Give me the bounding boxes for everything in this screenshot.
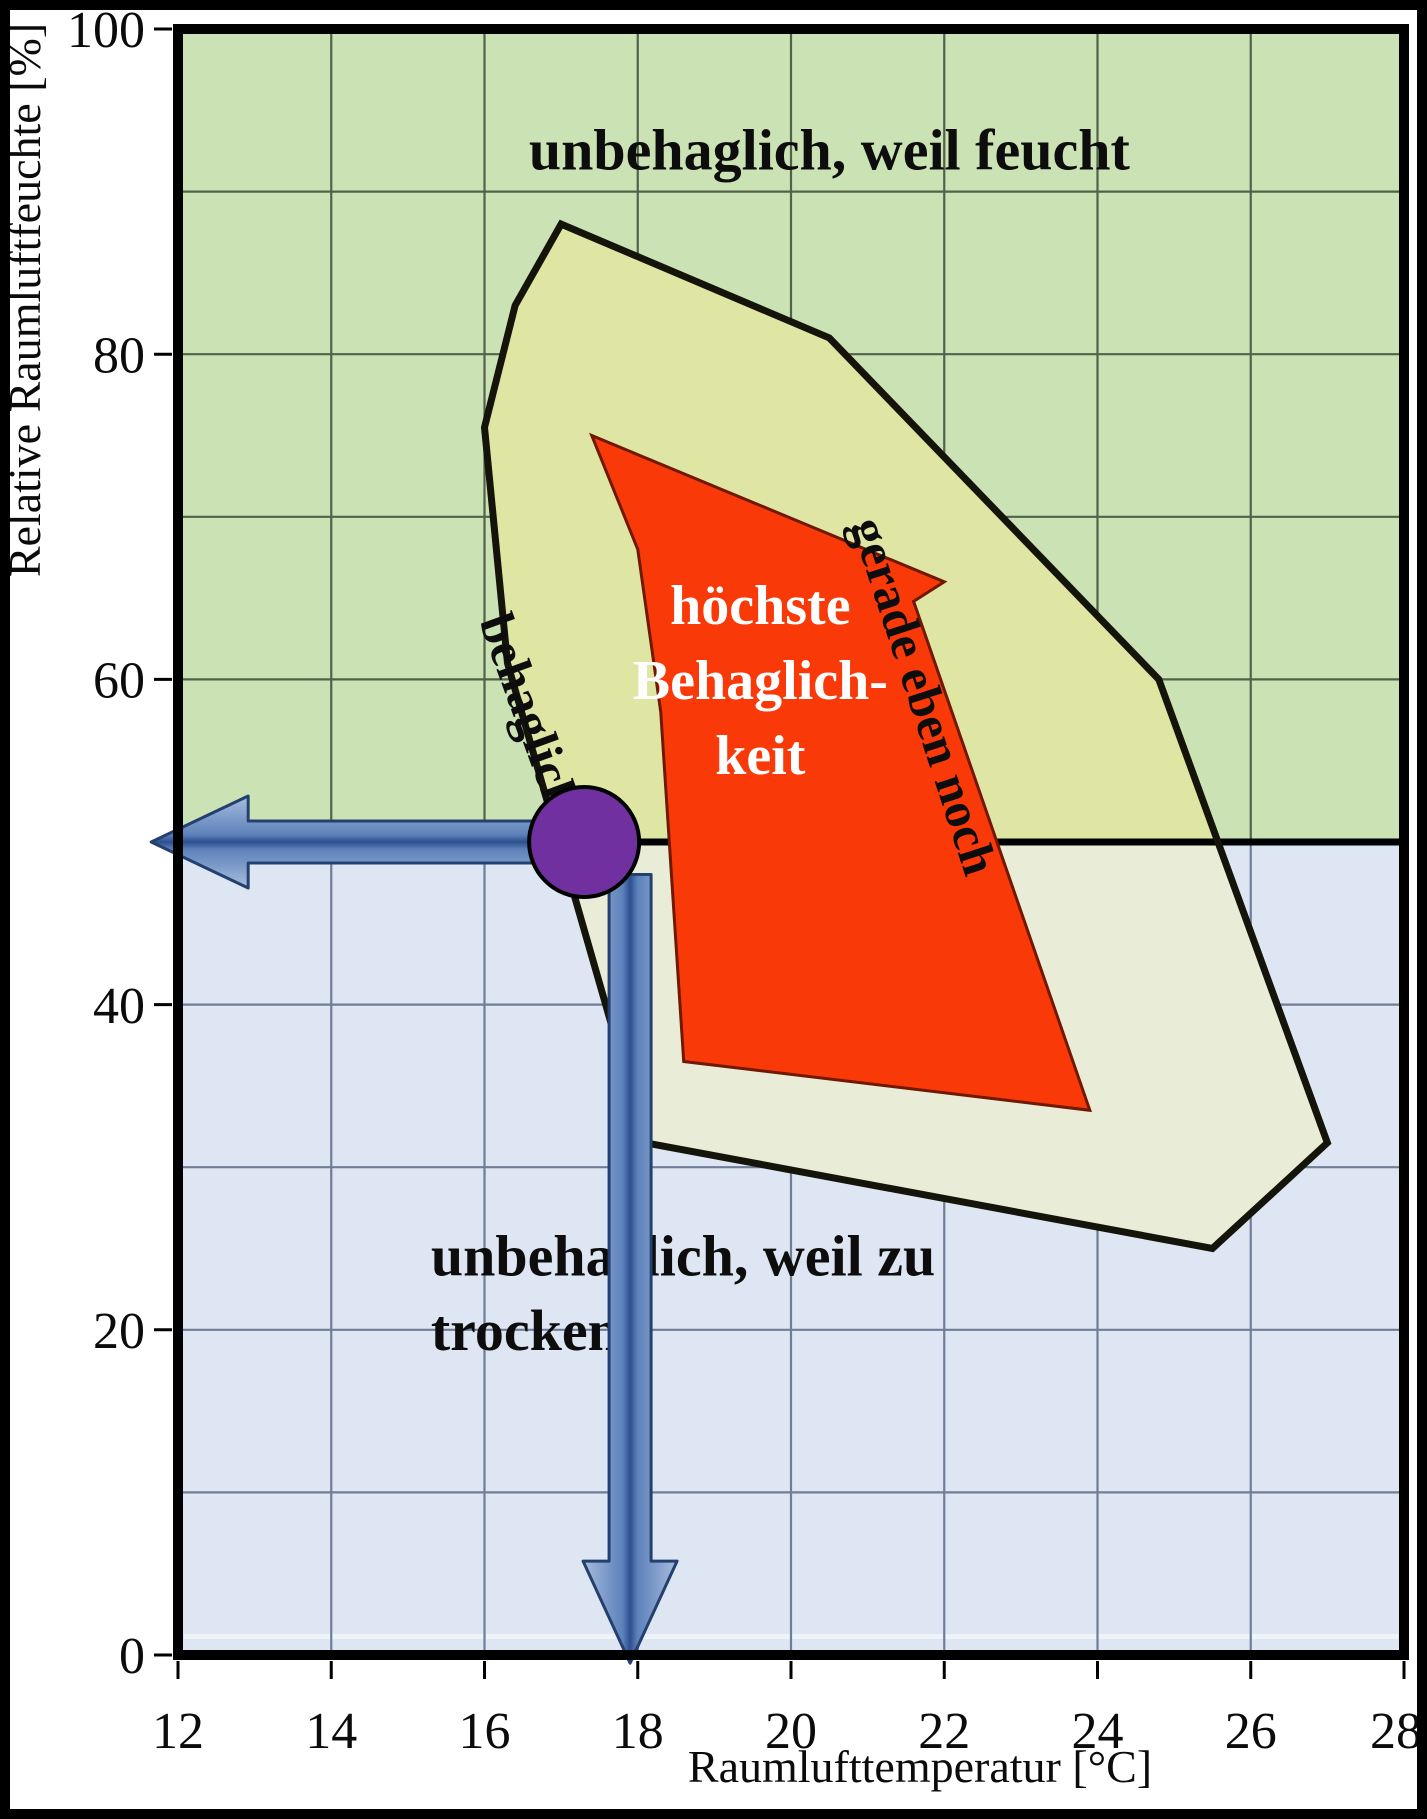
comfort-chart: unbehaglich, weil feuchtunbehaglich, wei… (0, 0, 1427, 1819)
x-axis-title: Raumlufttemperatur [°C] (688, 1741, 1152, 1792)
x-tick-label: 26 (1225, 1703, 1277, 1760)
label-optimal-zone-line: keit (715, 725, 806, 787)
x-tick-label: 12 (152, 1703, 204, 1760)
label-optimal-zone-line: Behaglich- (633, 650, 888, 712)
y-tick-label: 80 (93, 327, 145, 384)
x-tick-label: 16 (459, 1703, 511, 1760)
label-humid-region: unbehaglich, weil feucht (529, 118, 1131, 183)
x-tick-label: 18 (612, 1703, 664, 1760)
y-tick-label: 0 (119, 1628, 145, 1685)
y-tick-label: 40 (93, 978, 145, 1035)
y-tick-label: 100 (67, 2, 145, 59)
comfort-diagram-page: unbehaglich, weil feuchtunbehaglich, wei… (0, 0, 1427, 1819)
x-tick-label: 28 (1370, 1703, 1422, 1760)
label-dry-region-line: trocken (431, 1298, 620, 1363)
x-tick-label: 14 (305, 1703, 357, 1760)
label-optimal-zone-line: höchste (670, 575, 850, 637)
y-tick-label: 60 (93, 653, 145, 710)
y-tick-label: 20 (93, 1303, 145, 1360)
label-dry-region-line: unbehaglich, weil zu (431, 1223, 935, 1288)
comfort-point-marker (529, 787, 639, 897)
